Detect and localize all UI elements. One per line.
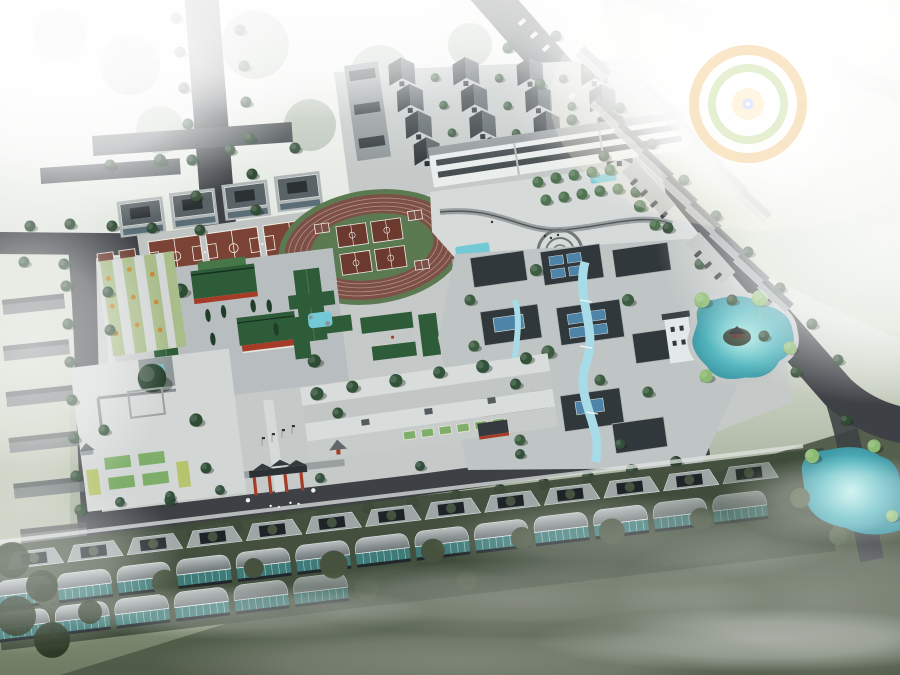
aerial-rendering bbox=[0, 0, 900, 675]
rendering-canvas bbox=[0, 0, 900, 675]
lens-flare bbox=[628, 0, 868, 209]
